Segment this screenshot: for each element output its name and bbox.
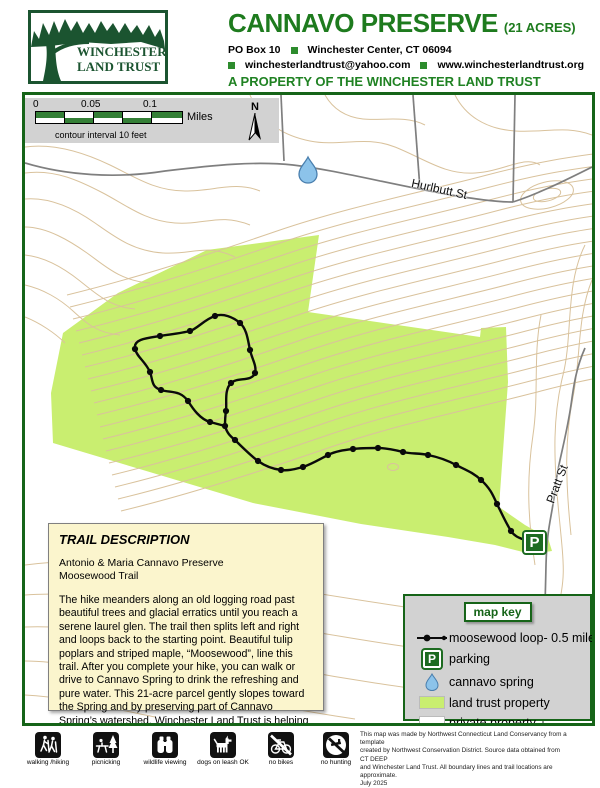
activity-no-hunting: no hunting [308,732,364,766]
trail-map: Hurlbutt St Pratt St 0 0.05 0.1 Miles co… [22,92,595,726]
north-label: N [245,102,265,113]
map-key: map key moosewood loop- 0.5 miles P park… [403,594,592,721]
key-label: cannavo spring [449,675,534,689]
preserve-full-name: Antonio & Maria Cannavo Preserve [59,557,313,570]
key-label: parking [449,652,490,666]
side-road-1 [281,95,284,161]
side-road-2 [413,95,420,189]
trail-description-box: TRAIL DESCRIPTION Antonio & Maria Cannav… [48,523,324,711]
credit-line: and Winchester Land Trust. All boundary … [360,764,570,780]
key-label: moosewood loop- 0.5 miles [449,631,595,645]
activity-label: no hunting [308,759,364,766]
activity-dogs-on-leash: dogs on leash OK [195,732,251,766]
logo-text-line2: LAND TRUST [77,59,161,74]
scale-tick-01: 0.1 [143,99,157,110]
map-credits: This map was made by Northwest Connectic… [360,731,570,788]
activity-walking-hiking: walking /hiking [20,732,76,766]
key-row-parking: P parking [415,648,584,670]
hurlbutt-road-east [513,167,592,202]
activity-no-bikes: no bikes [253,732,309,766]
spring-droplet-icon [415,673,449,691]
dog-icon [210,732,236,758]
hiking-icon [35,732,61,758]
scale-bar-box: 0 0.05 0.1 Miles contour interval 10 fee… [25,98,279,143]
bullet-icon [228,62,235,69]
contour-interval-note: contour interval 10 feet [55,130,147,140]
scale-bar [35,111,183,124]
north-arrow: N [245,102,265,142]
trail-description-body: The hike meanders along an old logging r… [59,594,313,726]
preserve-acreage: (21 ACRES) [504,20,576,35]
page-title: CANNAVO PRESERVE(21 ACRES) [228,8,576,39]
activity-label: walking /hiking [20,759,76,766]
activity-label: wildlife viewing [137,759,193,766]
cannavo-preserve-map-flyer: { "colors": { "brand_green": "#1e7b1e", … [0,0,600,776]
scale-tick-005: 0.05 [81,99,100,110]
binoculars-icon [152,732,178,758]
trail-name: Moosewood Trail [59,570,313,583]
activity-wildlife-viewing: wildlife viewing [137,732,193,766]
key-row-land-trust: land trust property [415,693,584,712]
no-hunting-icon [323,732,349,758]
logo-tree-icon: WINCHESTER LAND TRUST [31,13,165,81]
key-label: land trust property [449,696,550,710]
land-trust-swatch-icon [419,696,445,709]
address-line: PO Box 10Winchester Center, CT 06094 [228,44,452,56]
key-row-moosewood-loop: moosewood loop- 0.5 miles [415,628,584,647]
email-text: winchesterlandtrust@yahoo.com [245,59,410,71]
credit-line: July 2025 [360,780,570,788]
scale-tick-0: 0 [33,99,39,110]
scale-unit-label: Miles [187,111,213,123]
no-bikes-icon [268,732,294,758]
picnic-icon [93,732,119,758]
parking-sign: P [524,532,545,553]
spring-droplet-icon [299,157,317,183]
key-label: private property [449,716,536,727]
activity-label: picnicking [78,759,134,766]
trail-description-title: TRAIL DESCRIPTION [59,532,313,547]
contact-line: winchesterlandtrust@yahoo.comwww.winches… [228,59,584,71]
credit-line: This map was made by Northwest Connectic… [360,731,570,747]
map-key-title: map key [463,602,531,622]
activity-label: dogs on leash OK [195,759,251,766]
website-text: www.winchesterlandtrust.org [437,59,584,71]
private-property-swatch-icon [419,716,445,726]
side-road-3 [513,95,515,202]
po-box: PO Box 10 [228,44,281,56]
winchester-land-trust-logo: WINCHESTER LAND TRUST [28,10,168,84]
logo-text-line1: WINCHESTER [77,44,165,59]
key-row-spring: cannavo spring [415,671,584,692]
parking-icon: P [423,650,441,668]
bullet-icon [291,47,298,54]
credit-line: created by Northwest Conservation Distri… [360,747,570,763]
trail-line-icon [415,633,449,643]
compass-needle-icon [247,113,263,141]
property-tagline: A PROPERTY OF THE WINCHESTER LAND TRUST [228,74,541,89]
preserve-name: CANNAVO PRESERVE [228,8,498,38]
activity-label: no bikes [253,759,309,766]
key-row-private: private property [415,713,584,726]
activity-picnicking: picnicking [78,732,134,766]
bullet-icon [420,62,427,69]
city-state-zip: Winchester Center, CT 06094 [308,44,452,56]
